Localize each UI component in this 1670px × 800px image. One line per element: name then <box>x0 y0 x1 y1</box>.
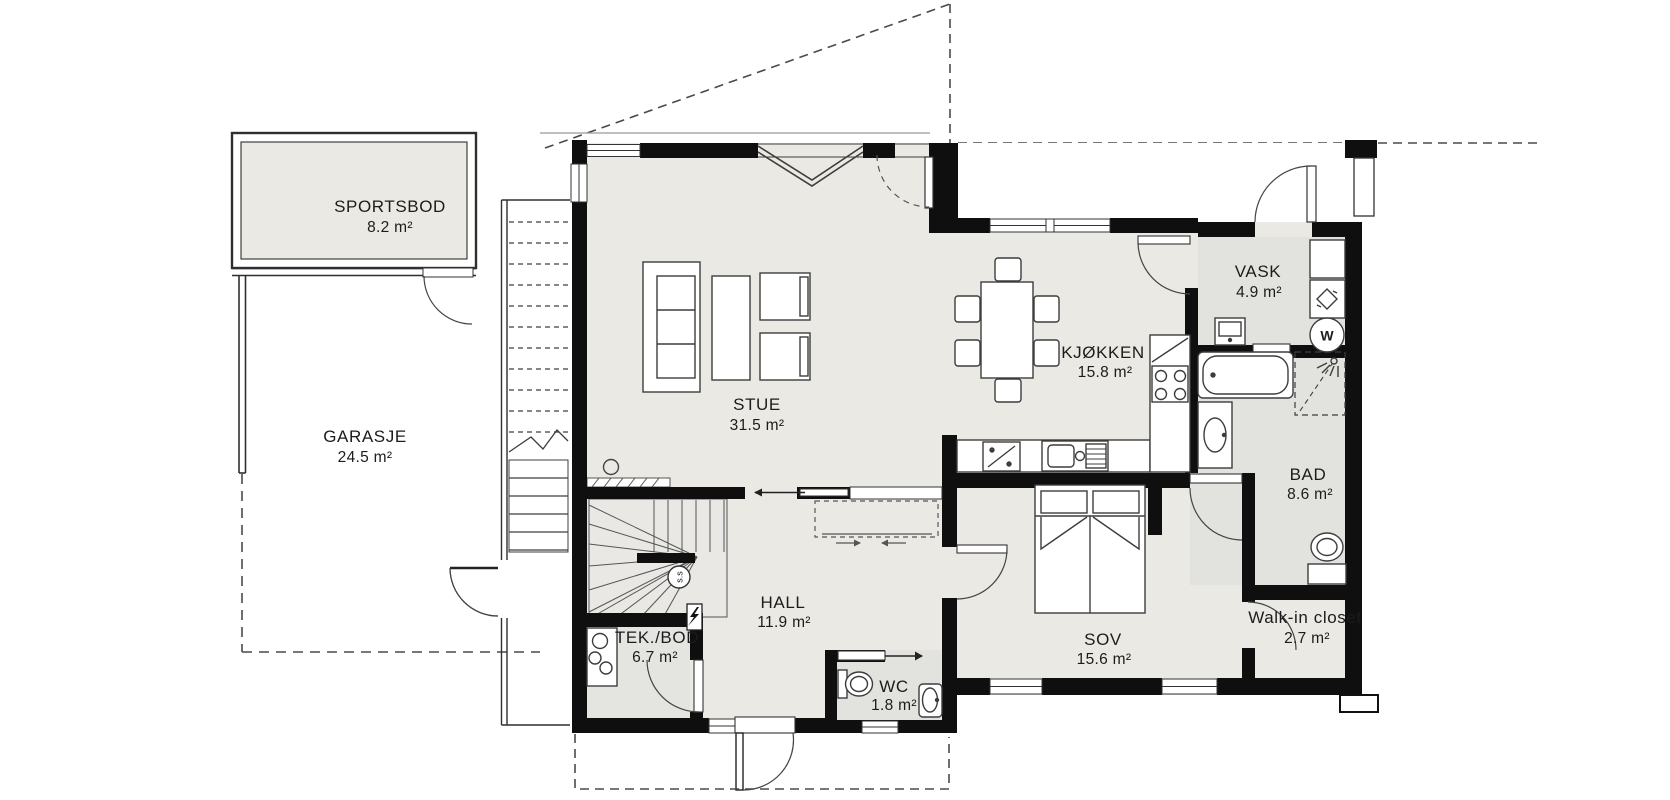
svg-text:KJØKKEN: KJØKKEN <box>1061 343 1145 362</box>
coffee-table-icon <box>712 276 750 380</box>
room-label-garasje: GARASJE 24.5 m² <box>323 427 407 466</box>
vask-sink-icon <box>1215 318 1245 345</box>
roof-outline <box>545 4 1537 148</box>
svg-text:Walk-in closet: Walk-in closet <box>1248 608 1362 627</box>
sov-window-2 <box>1162 679 1217 694</box>
sportsbod-door <box>423 268 473 324</box>
dryer-icon <box>1310 280 1345 318</box>
armchair-icon <box>760 333 810 380</box>
floorplan-drawing: s.s <box>0 0 1670 800</box>
svg-text:24.5 m²: 24.5 m² <box>338 449 393 466</box>
svg-text:15.6 m²: 15.6 m² <box>1077 651 1132 668</box>
garage-side-door <box>450 568 498 616</box>
svg-text:31.5 m²: 31.5 m² <box>730 417 785 434</box>
porch-outline <box>575 734 949 789</box>
svg-text:11.9 m²: 11.9 m² <box>757 614 811 631</box>
dishwasher-icon <box>983 442 1020 471</box>
bad-sink-icon <box>1198 402 1232 468</box>
terrace-floor <box>958 143 1345 222</box>
hall-sidelight-window <box>709 719 737 733</box>
svg-text:TEK./BOD: TEK./BOD <box>615 628 699 647</box>
stair-rail-wall <box>637 553 695 563</box>
svg-text:SPORTSBOD: SPORTSBOD <box>334 197 446 216</box>
garage-left-wall <box>239 276 246 473</box>
electrical-panel-icon <box>687 604 702 630</box>
wc-sink-icon <box>919 684 942 717</box>
svg-text:STUE: STUE <box>733 395 781 414</box>
exterior-stairs <box>450 200 570 725</box>
sov-window-1 <box>990 679 1042 694</box>
svg-text:8.6 m²: 8.6 m² <box>1287 486 1333 503</box>
svg-text:GARASJE: GARASJE <box>323 427 407 446</box>
entrance-door <box>735 717 795 790</box>
armchair-icon <box>760 273 810 320</box>
svg-text:WC: WC <box>879 677 909 696</box>
svg-text:SOV: SOV <box>1084 630 1122 649</box>
kitchen-sink-icon <box>1042 441 1108 471</box>
svg-text:HALL: HALL <box>761 593 806 612</box>
svg-text:BAD: BAD <box>1290 465 1327 484</box>
svg-text:2.7 m²: 2.7 m² <box>1284 630 1330 647</box>
svg-text:VASK: VASK <box>1235 262 1282 281</box>
svg-text:8.2 m²: 8.2 m² <box>367 219 413 236</box>
water-heater-icon <box>587 628 617 686</box>
bathtub-icon <box>1198 352 1293 398</box>
upper-flight-treads <box>509 222 568 432</box>
stair-break-line <box>509 430 568 452</box>
wc-toilet-icon <box>838 670 873 698</box>
floorplan: s.s <box>0 0 1670 800</box>
svg-text:6.7 m²: 6.7 m² <box>632 649 678 666</box>
stue-left-window <box>571 164 587 202</box>
understair-door <box>450 568 498 616</box>
terrace-corner-post <box>1345 140 1377 216</box>
washer-letter: W <box>1320 328 1334 344</box>
svg-text:1.8 m²: 1.8 m² <box>871 697 917 714</box>
stue-stair-hatch <box>587 478 670 487</box>
wc-window <box>862 721 898 733</box>
garage-open-outline <box>242 474 540 652</box>
stove-icon <box>1152 366 1188 402</box>
cabinet-icon <box>1310 240 1345 278</box>
pocket-wall <box>850 487 942 499</box>
corner-step <box>1340 695 1378 712</box>
stair-start-label: s.s <box>675 571 685 583</box>
sofa-icon <box>643 262 700 392</box>
bed-icon <box>1035 485 1145 613</box>
lower-flight-treads <box>509 460 568 552</box>
stair-start-mark: s.s <box>668 566 690 588</box>
svg-text:4.9 m²: 4.9 m² <box>1236 284 1282 301</box>
kitchen-window <box>990 219 1110 232</box>
washer-icon: W <box>1310 318 1344 352</box>
stue-top-window <box>587 145 640 157</box>
svg-text:15.8 m²: 15.8 m² <box>1078 364 1133 381</box>
